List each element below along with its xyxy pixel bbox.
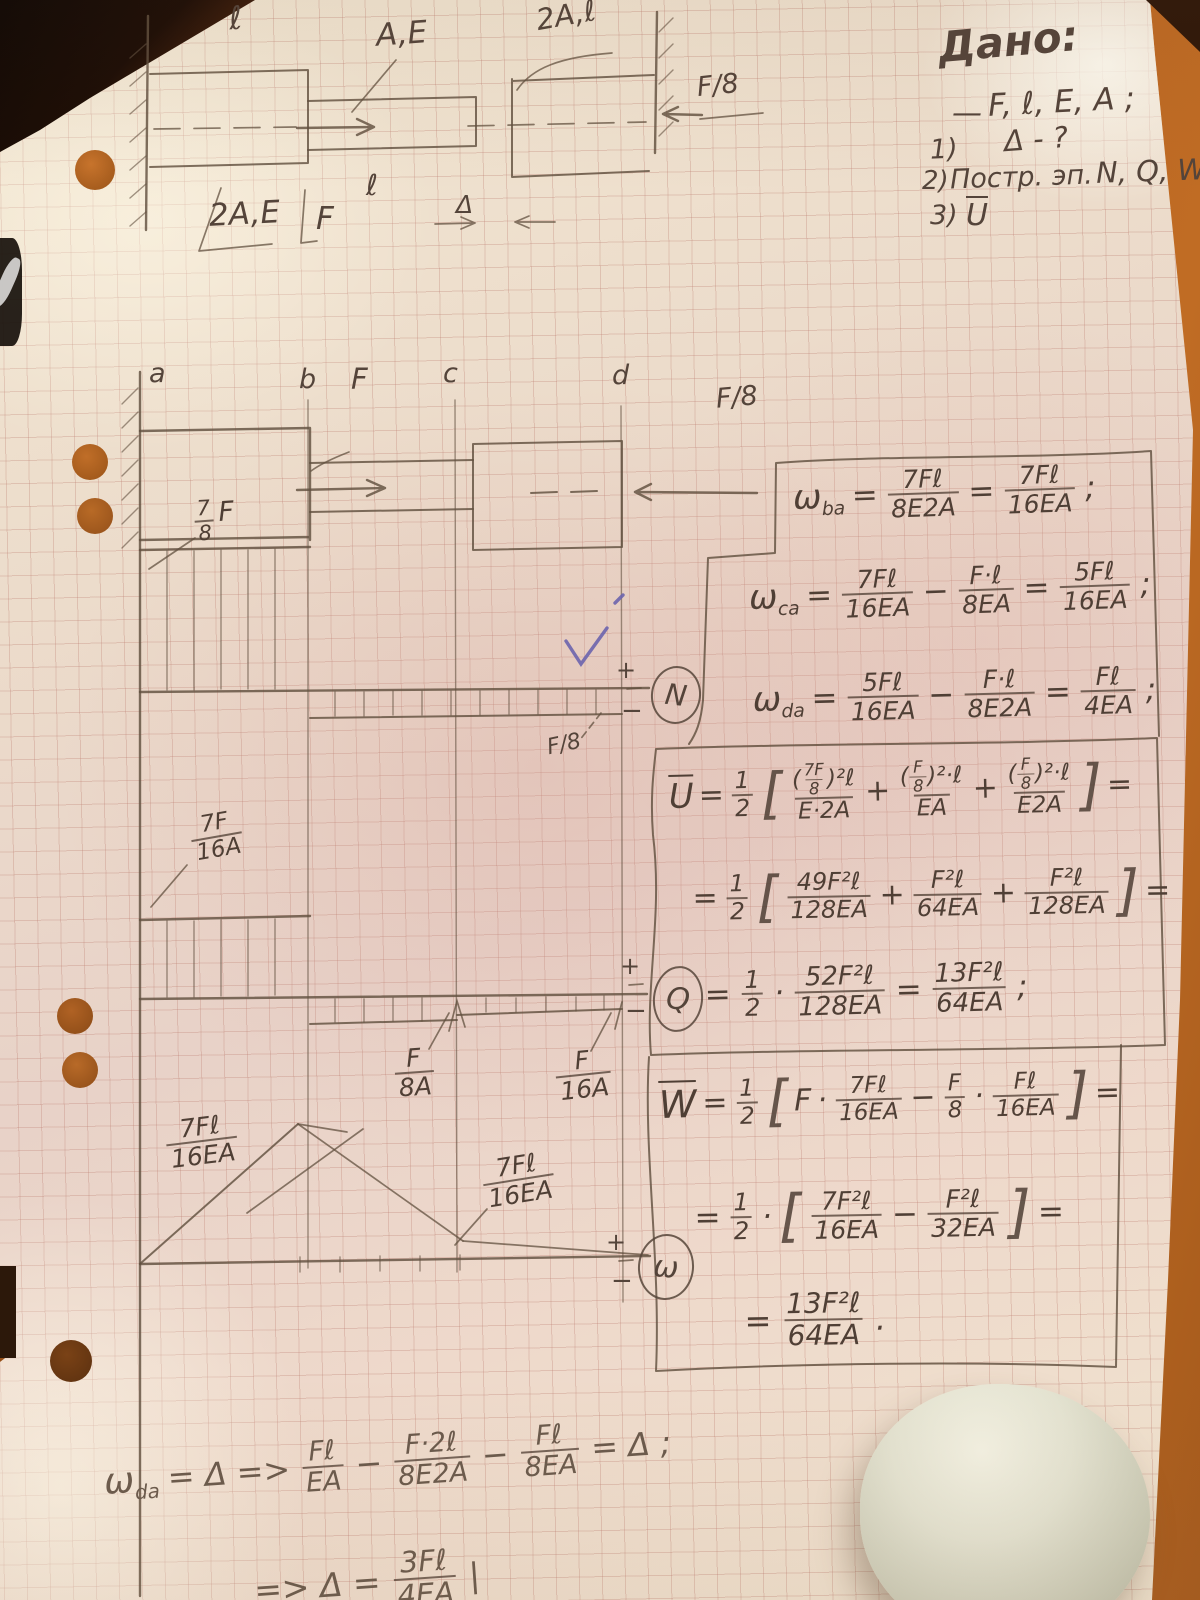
fig2-point-d: d [612,362,629,390]
n-baseline [140,688,649,692]
equals: = [744,1302,771,1340]
paren-sq: )²ℓ [827,766,855,792]
q-band-bc-bottom [310,1020,457,1024]
half-den: 2 [742,993,764,1022]
label-ae-leader [352,60,396,112]
n-minus-sign: − [621,698,643,725]
equals: = [694,1199,721,1235]
force-f: F [794,1083,812,1118]
equals: = [698,778,724,814]
fraction-num: Fℓ [305,1436,338,1467]
fraction-num: F·2ℓ [402,1427,460,1460]
q-cd-den: 16A [556,1071,614,1106]
fig2-force-label: F [351,364,368,394]
dot: · [774,975,785,1011]
equals: = [811,680,838,717]
half-num: 1 [742,966,762,993]
formula-w-ba: ωba = 7Fℓ8E2A = 7Fℓ16EA ; [792,459,1096,526]
half-den: 2 [727,897,748,925]
fraction-num: 3Fℓ [397,1544,450,1579]
equals: = [1107,767,1133,803]
q-step-d [615,1002,622,1029]
fraction-num: 52F²ℓ [803,962,877,992]
mini-den: 8 [1017,773,1034,792]
fraction-den: 16EA [842,591,914,622]
w-baseline-ticks [300,1255,460,1272]
wall-hatching [122,388,138,548]
fraction-num: 7Fℓ [847,1073,889,1099]
w-descending-line-1 [298,1124,463,1241]
omega-symbol: ωda [103,1458,161,1503]
formula-u-line2: = 12 [ 49F²ℓ128EA + F²ℓ64EA + F²ℓ128EA ]… [692,858,1171,931]
fig1-area-ae-label: A,E [375,16,428,52]
fig1-length-mid-label: ℓ [366,170,378,200]
delta-gap-dimension [435,216,555,229]
n-plus-sign: + [616,658,636,683]
fraction-den: 4EA [1081,689,1137,719]
omega-symbol: ωca [748,576,800,618]
q-bc-value: F8A [390,1043,439,1102]
fixed-wall-right [655,12,657,153]
paren: ( [900,764,910,789]
n-diagram [140,538,649,741]
mini-den: 8 [910,776,927,795]
mini-num: F [911,758,925,776]
given-item-2-diagrams: N, Q, W [1096,154,1200,188]
w-label-leader-2 [455,1209,487,1245]
fraction-num: 13F²ℓ [784,1288,863,1320]
n-negative-ticks [335,690,596,716]
equals: = [851,477,878,514]
fraction-den: 8E2A [888,491,960,522]
n-peak-den: 8 [195,519,216,545]
u-symbol: U [668,776,694,817]
n-hatching [167,549,275,690]
fig1-force-label: F [316,203,334,236]
equals: = [1038,1193,1065,1229]
fraction-den: 64EA [784,1318,863,1352]
n-peak-num: 7 [194,497,213,521]
q-bc-ticks [335,998,422,1022]
given-item-3-num: 3) [930,202,958,230]
w-symbol: W [658,1082,697,1127]
force-f-bracket [301,190,317,243]
paren: ( [1007,762,1017,787]
dot: · [974,1078,984,1113]
fraction-num: 7Fℓ [900,465,946,494]
dot: · [762,1198,772,1234]
equals-delta: = Δ ; [590,1423,672,1466]
notebook-photo: Дано: — F, ℓ, E, A ; 1) Δ - ? 2) Постр. … [0,0,1200,1600]
fraction-den: 8EA [521,1448,582,1483]
equals: = [1145,873,1171,908]
fig1-area-2ae-label: 2A,E [208,196,281,232]
q-cd-value: F16A [550,1044,616,1106]
fraction-den: 8EA [959,588,1015,619]
mini-num: F [1019,755,1033,773]
fraction-num: 7Fℓ [854,565,900,594]
punct: ; [1017,969,1028,1005]
q-label-leader [151,865,187,907]
fraction-num: F·ℓ [980,665,1017,693]
given-vars: F, ℓ, E, A ; [987,82,1135,122]
q-minus-sign: − [625,998,647,1025]
paren-sq: )²·ℓ [1035,760,1071,786]
formula-w-da: ωda = 5Fℓ16EA − F·ℓ8E2A = Fℓ4EA ; [752,661,1157,728]
segment-2a-right-outline [512,75,654,177]
w-peak-value: 7Fℓ16EA [160,1109,243,1174]
fraction-num: 7Fℓ [1016,461,1062,490]
q-axis-dash [629,984,643,985]
minus: − [892,1196,919,1232]
fraction-den: 16EA [836,1097,902,1126]
left-bracket: [ [756,865,779,930]
half-num: 1 [732,768,752,794]
subscript: ba [822,498,846,520]
equals: = [1023,569,1050,606]
force-f8-arrow [663,107,702,121]
plus: + [879,877,905,912]
fig2-f8-label: F/8 [715,382,759,414]
half-num: 1 [727,871,746,897]
equals: = [806,577,833,614]
minus: − [928,677,955,714]
omega-symbol: ωda [752,679,805,720]
equals: = [1094,1075,1120,1111]
given-item-2: Постр. эп. [950,162,1094,195]
left-bracket: [ [766,1069,789,1135]
subscript: ca [778,598,800,620]
q-peak-value: 7F16A [184,806,249,867]
wall-hatching [130,44,146,226]
segment-2a-outline [150,70,308,167]
mini-den: 8 [806,779,823,798]
implies-delta: => Δ = [253,1562,382,1600]
q-diagram [140,865,647,1051]
left-bracket: [ [760,761,783,827]
fraction-den: 16EA [993,1093,1059,1122]
fraction-num: Fℓ [533,1420,566,1451]
plus: + [972,770,998,806]
fraction-den: 16EA [847,695,918,726]
fig1-f8-label: F/8 [696,70,741,103]
fig2-point-b: b [299,366,316,394]
q-cd-num: F [571,1046,592,1075]
punct: ; [1145,671,1156,707]
fraction-num: Fℓ [1093,662,1122,690]
check-mark [566,628,607,664]
omega-symbol: ωba [792,476,845,518]
fraction-num: 7F²ℓ [819,1186,874,1214]
fraction-den: E·2A [795,797,854,825]
fraction-den: 4EA [393,1575,458,1600]
fraction-den: 16EA [1059,584,1131,615]
formula-u-line1: U = 12 [ (7F8)²ℓ E·2A + (F8)²·ℓ EA + (F8… [668,752,1133,829]
fraction-den: 128EA [787,894,871,923]
equals: = [1044,674,1071,711]
dot: · [817,1083,827,1118]
minus: − [922,573,949,610]
given-dash: — [952,98,982,130]
w-axis-dash [619,1260,633,1261]
paren: ( [792,767,802,792]
q-bc-num: F [403,1044,423,1072]
q-hatching [167,919,275,997]
fraction-num: F [946,1071,964,1096]
n-peak-f: F [217,496,235,528]
plus: + [991,875,1017,910]
fraction-num: F²ℓ [929,867,967,894]
force-f8-arrow [635,484,757,500]
fraction-den: 16EA [811,1213,882,1243]
n-f8-leader [579,713,601,741]
fraction-num: Fℓ [1011,1069,1038,1095]
equals: = [692,881,718,916]
w-baseline [140,1256,650,1264]
q-plus-sign: + [620,954,640,979]
equals: = [968,473,995,510]
n-label-leader [149,538,195,569]
fig1-length-label: ℓ [228,2,244,36]
w-plus-sign: + [606,1230,626,1255]
fraction-den: 64EA [914,892,983,921]
fraction-den: 32EA [928,1211,999,1241]
given-item-1: Δ - ? [1003,122,1069,157]
formula-work-line2: = 12 · [ 7F²ℓ16EA − F²ℓ32EA ] = [694,1178,1065,1251]
fraction-den: 64EA [933,986,1007,1018]
right-bracket: ] [1008,1178,1032,1245]
given-item-1-num: 1) [929,135,958,165]
half-den: 2 [732,793,754,821]
q-positive-top [140,916,310,920]
f8-underline [700,113,763,119]
punct: ; [1140,566,1152,602]
half-den: 2 [731,1215,753,1243]
minus: − [481,1435,510,1475]
equals: = [702,1085,728,1121]
right-bracket: ] [1117,858,1140,923]
centerline-dashed [154,127,296,129]
segment-cd-outline [473,441,622,550]
subscript: da [781,701,805,723]
plus: + [865,773,891,809]
fig2-point-c: c [443,360,458,388]
fig2-point-a: a [149,360,166,388]
fraction-num: F²ℓ [943,1184,982,1212]
punct: . [876,1300,887,1338]
fraction-num: 49F²ℓ [795,869,863,896]
w-peak-cap [298,1124,347,1132]
n-peak-value: 78 F [190,495,236,545]
fraction-num: 5Fℓ [1072,557,1118,586]
fraction-den: 8 [944,1095,965,1122]
formula-work-line1: W = 12 [ F · 7Fℓ16EA − F8 · Fℓ16EA ] = [658,1060,1121,1137]
fraction-den: 128EA [1025,890,1109,919]
equals-arrow: = Δ => [166,1450,291,1496]
fraction-den: EA [913,794,950,822]
fraction-num: 13F²ℓ [932,958,1006,988]
q-band-cd-bottom [457,1009,622,1015]
label-2al-leader [517,53,612,90]
given-item-3: U [966,200,988,232]
equals: = [704,976,731,1013]
fig1-delta-label: Δ [456,192,473,218]
n-positive-top [140,547,310,550]
column-line-c [455,400,457,1272]
paren-sq: )²·ℓ [927,763,963,789]
fraction-den: 128EA [795,989,886,1021]
minus: − [354,1444,383,1484]
fraction-den: 8E2A [964,692,1035,723]
minus: − [910,1080,936,1116]
half-num: 1 [737,1076,757,1102]
fraction-num: 5Fℓ [860,668,905,696]
n-negative-bottom [310,714,622,718]
fraction-num: F²ℓ [1048,865,1086,892]
centerline-dashes [531,491,597,493]
segment-bc-outline [310,460,473,512]
left-bracket: [ [778,1182,802,1249]
w-c-value: 7Fℓ16EA [476,1146,561,1213]
centerline-dashed [468,122,646,126]
half-den: 2 [737,1101,759,1129]
formula-work-line3: = 13F²ℓ64EA . [744,1288,887,1353]
q-bc-den: 8A [395,1070,436,1102]
formula-u-line3: = 12 · 52F²ℓ128EA = 13F²ℓ64EA ; [704,958,1028,1025]
fraction-den: EA [302,1464,346,1498]
given-item-2-num: 2) [922,168,949,195]
half-num: 1 [731,1189,751,1215]
equals: = [895,971,922,1008]
fraction-den: 8E2A [394,1456,472,1492]
subscript: da [134,1479,160,1504]
fraction-num: F·ℓ [967,561,1005,589]
n-axis-dash [627,688,641,689]
fraction-den: E2A [1014,791,1066,819]
fraction-den: 16EA [1004,487,1076,518]
right-bracket: ] [1066,1061,1089,1127]
mini-num: 7F [802,761,827,779]
right-bracket: ] [1080,753,1103,819]
segment-a-outline [308,97,476,150]
fixed-wall-left [146,16,148,230]
w-minus-sign: − [611,1268,633,1295]
punct: ; [1084,469,1096,505]
w-label-leader-1 [247,1129,363,1213]
